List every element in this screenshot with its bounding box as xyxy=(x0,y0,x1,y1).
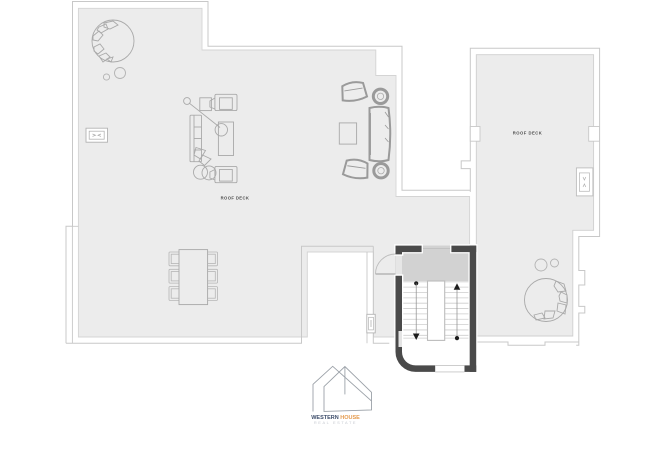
svg-text:REAL ESTATE: REAL ESTATE xyxy=(314,420,357,425)
svg-text:ROOF DECK: ROOF DECK xyxy=(221,196,250,201)
svg-text:ROOF DECK: ROOF DECK xyxy=(513,130,543,135)
